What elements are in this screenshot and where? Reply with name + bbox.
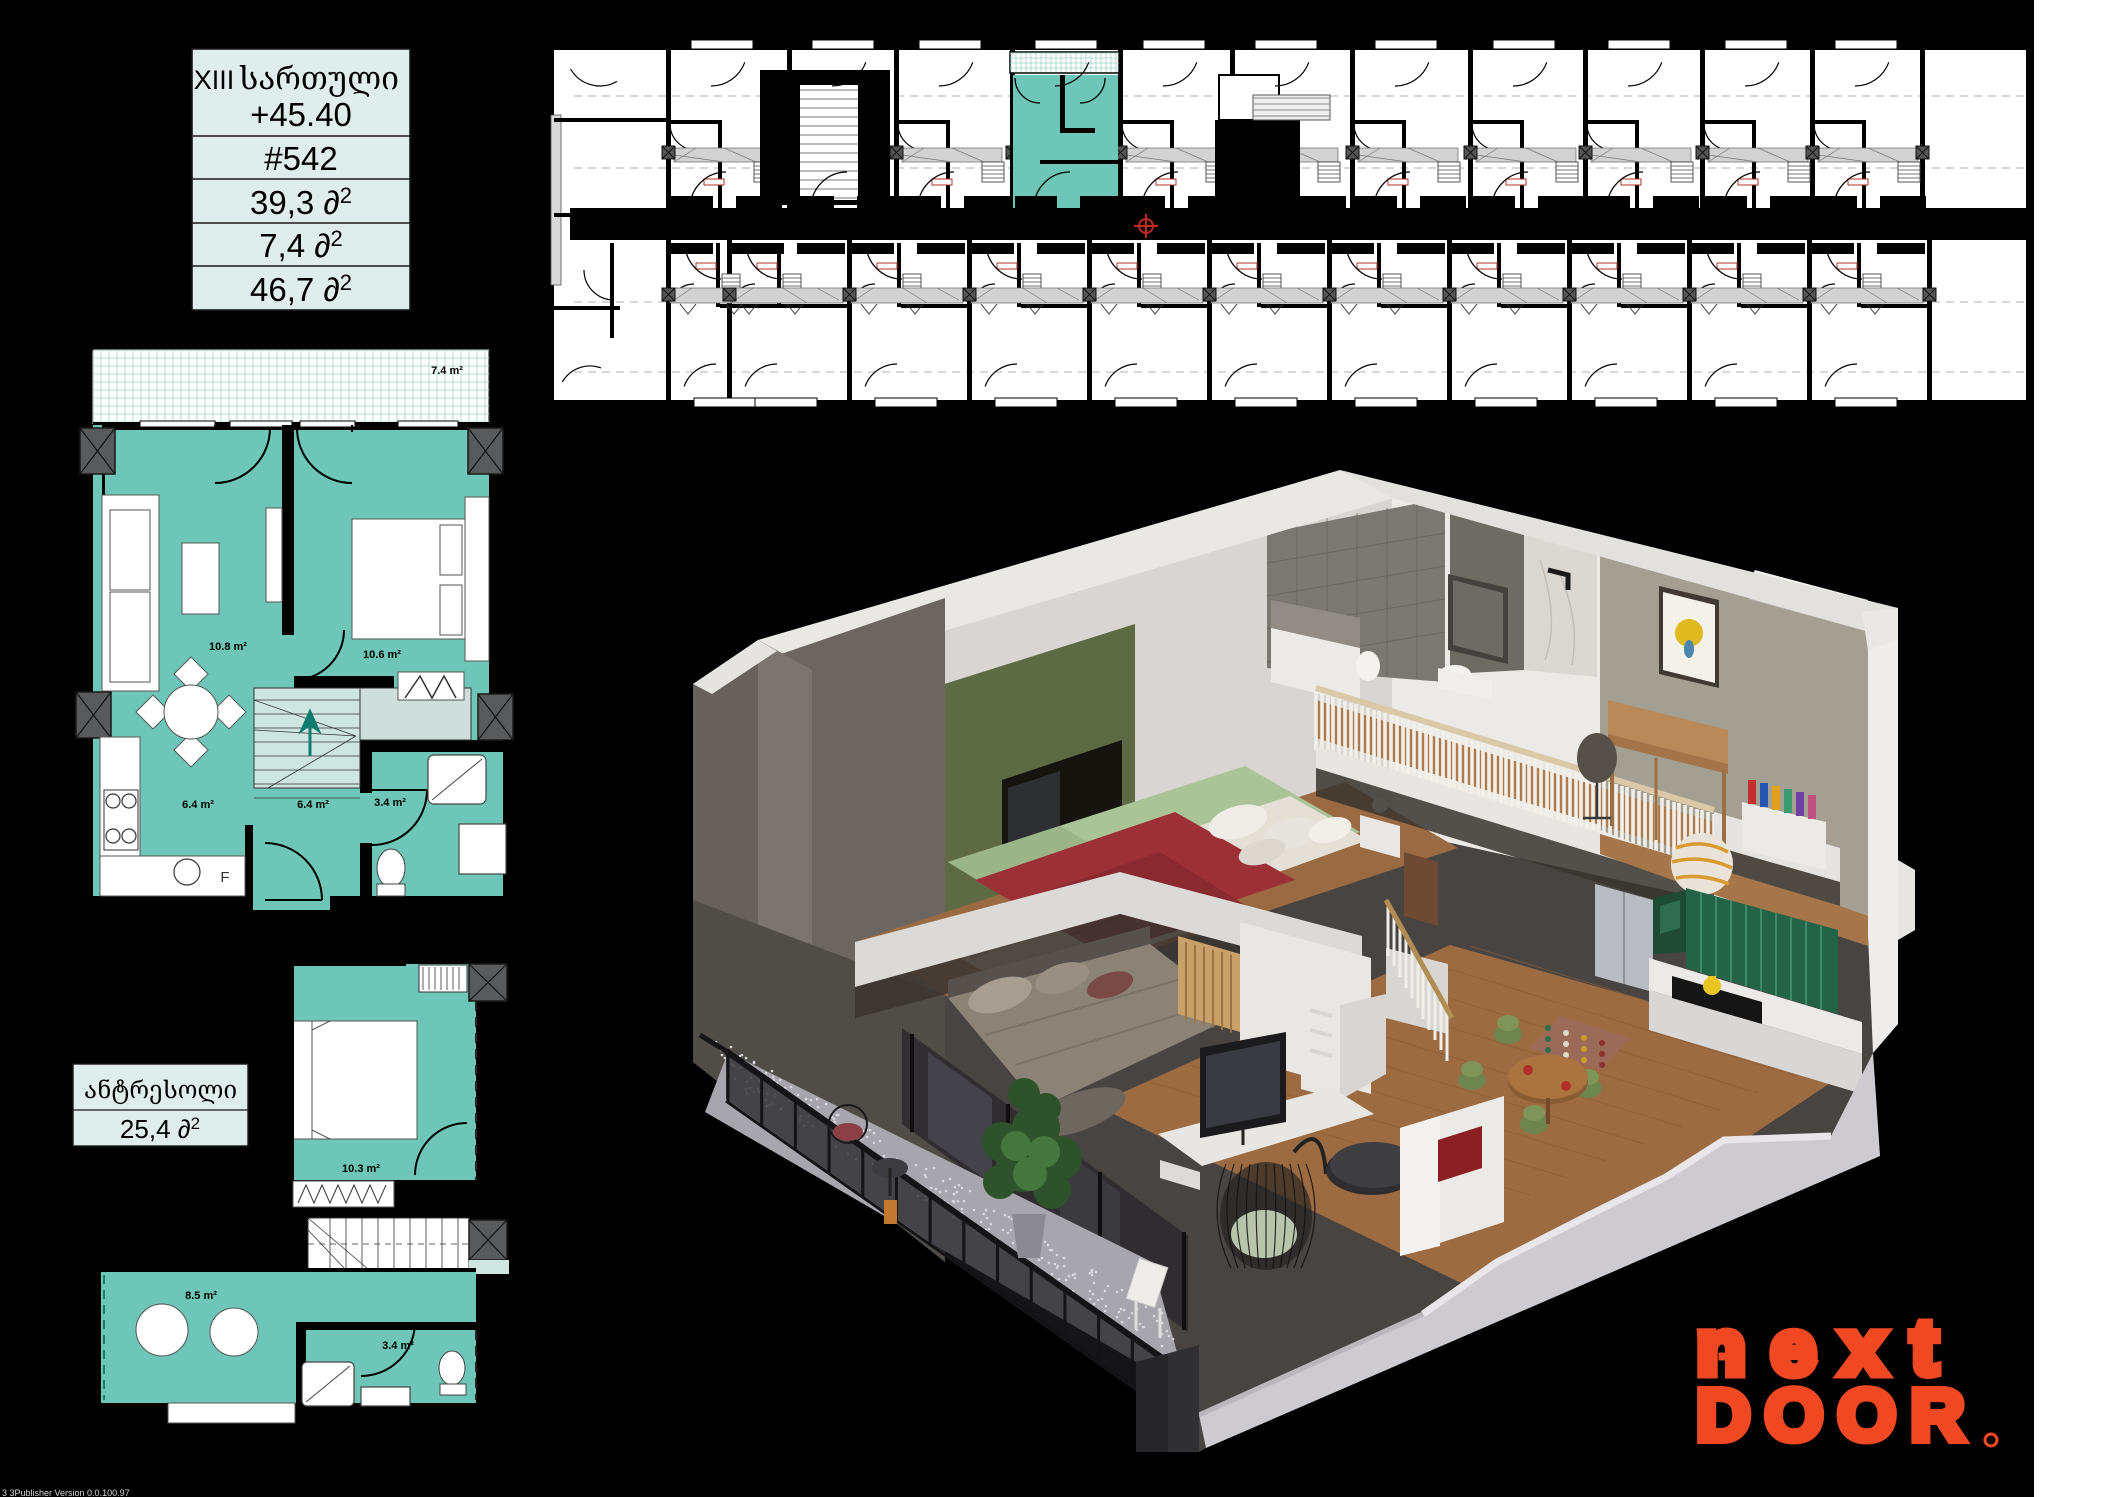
svg-text:6.4 m²: 6.4 m² <box>182 799 214 811</box>
svg-text:46,7 ∂2: 46,7 ∂2 <box>250 270 352 308</box>
svg-text:10.8 m²: 10.8 m² <box>209 641 247 653</box>
svg-text:25,4 ∂2: 25,4 ∂2 <box>120 1114 200 1144</box>
svg-text:39,3 ∂2: 39,3 ∂2 <box>250 183 352 221</box>
svg-text:3 3Publisher Version 0.0.100.9: 3 3Publisher Version 0.0.100.97 <box>2 1488 130 1497</box>
svg-text:7.4 m²: 7.4 m² <box>431 365 463 377</box>
svg-text:7,4 ∂2: 7,4 ∂2 <box>259 226 343 264</box>
svg-text:8.5 m²: 8.5 m² <box>185 1290 217 1302</box>
svg-text:+45.40: +45.40 <box>250 96 352 133</box>
svg-text:6.4 m²: 6.4 m² <box>297 799 329 811</box>
svg-text:DOOR: DOOR <box>1696 1375 1979 1455</box>
svg-text:3.4 m²: 3.4 m² <box>374 797 406 809</box>
svg-text:F: F <box>220 869 229 886</box>
svg-text:XIII: XIII <box>194 65 235 95</box>
svg-text:10.3 m²: 10.3 m² <box>342 1163 380 1175</box>
svg-text:10.6 m²: 10.6 m² <box>363 649 401 661</box>
svg-text:#542: #542 <box>264 140 337 177</box>
